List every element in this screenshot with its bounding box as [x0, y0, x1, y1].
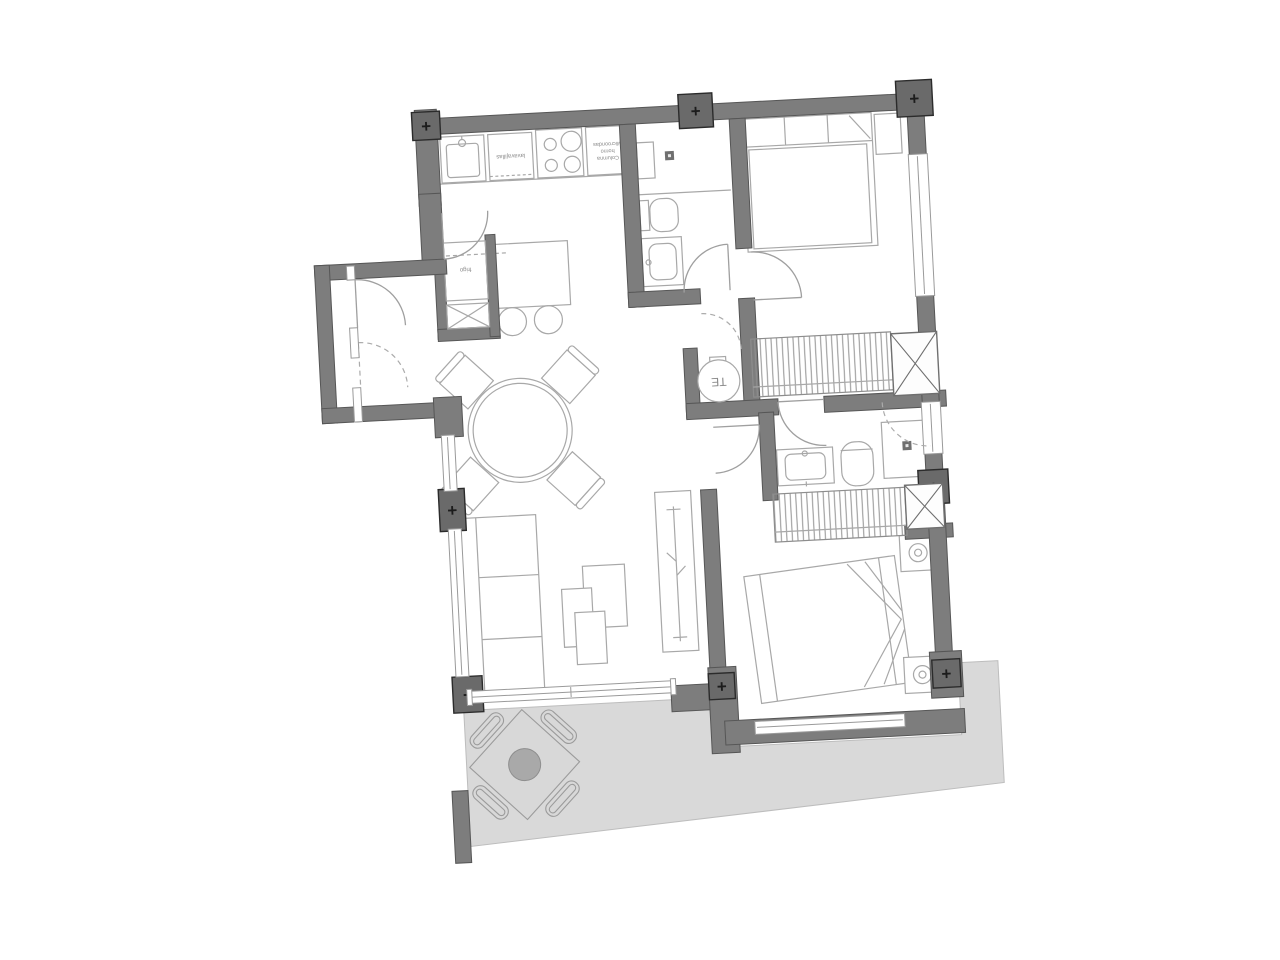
shower-shelf [636, 142, 655, 179]
living-room [433, 339, 701, 703]
sink-vanity [777, 447, 835, 488]
nightstand [874, 113, 902, 154]
entry-south-wall [322, 403, 441, 424]
door-bathroom2 [778, 399, 826, 447]
svg-text:+: + [447, 501, 458, 520]
kitchen-west-wall [419, 193, 445, 266]
shower-drain-icon [665, 151, 674, 160]
water-heater: TE [697, 356, 741, 403]
window [908, 154, 934, 297]
shaft-x-icon [891, 331, 940, 395]
column-marker-icon: + [895, 79, 933, 117]
terrace-wall-stub [452, 791, 472, 864]
entry-north-wall [314, 259, 447, 281]
dishwasher-label: lavavajillas [496, 152, 525, 160]
bath1-south-wall [628, 289, 701, 308]
water-heater-label: TE [711, 374, 727, 389]
plan-rotated-group: lavavajillas Microondas horno Columna [306, 77, 1007, 869]
door-kitchen [442, 211, 490, 259]
svg-text:+: + [941, 664, 952, 683]
double-bed [744, 556, 912, 704]
bar-stool [498, 307, 527, 336]
column-marker-icon: + [708, 672, 735, 699]
toilet-icon [840, 441, 874, 487]
wardrobe [773, 487, 907, 542]
tall-unit-label-1: Microondas [593, 140, 622, 147]
kitchen-island [487, 241, 572, 337]
svg-text:+: + [690, 101, 701, 120]
fridge-label: frigo [459, 266, 472, 273]
kitchen-sink [440, 135, 486, 183]
sink-vanity [641, 237, 683, 287]
shower-screen [637, 190, 731, 195]
door-entry-closet [358, 340, 407, 389]
svg-text:+: + [909, 89, 920, 108]
entry-partition [346, 266, 362, 422]
door-bathroom1 [682, 244, 730, 292]
stove-icon [535, 128, 583, 178]
shaft-x-icon [905, 483, 945, 529]
bedroom-1 [741, 111, 907, 252]
double-bed [741, 113, 878, 253]
floor-plan-page: lavavajillas Microondas horno Columna [0, 0, 1280, 960]
dishwasher: lavavajillas [488, 132, 534, 180]
coffee-tables [560, 564, 629, 665]
bath1-west-wall [619, 124, 645, 308]
door-heater-niche [701, 312, 741, 352]
terrace-dining-set [466, 706, 584, 824]
kitchen-counter-edge [440, 174, 632, 184]
door-entry [355, 277, 405, 327]
tall-unit-label-2: horno [600, 147, 614, 154]
bathroom-1 [634, 138, 735, 287]
door-bedroom1 [751, 249, 801, 299]
column-marker-icon: + [438, 488, 466, 531]
column-marker-icon: + [678, 93, 714, 129]
column-marker-icon: + [411, 111, 440, 140]
living-east-wall [701, 489, 727, 686]
sofa [458, 515, 546, 703]
kitchen: lavavajillas Microondas horno Columna [438, 125, 640, 339]
window [441, 435, 457, 492]
bath2-west-wall [759, 412, 779, 501]
tv-sideboard [655, 491, 699, 653]
bar-stool [534, 305, 563, 334]
tall-unit-label-3: Columna [596, 154, 619, 161]
column-marker-icon: + [932, 659, 961, 688]
entry-corner-block [433, 396, 463, 437]
wardrobe [751, 332, 894, 397]
svg-text:+: + [716, 677, 727, 696]
bathroom-2 [775, 420, 932, 490]
door-bedroom2 [713, 425, 761, 473]
entry-west-wall [314, 265, 337, 424]
svg-text:+: + [421, 117, 432, 136]
bedroom-2 [742, 534, 943, 704]
upper-cabinet-dashed [446, 253, 508, 256]
floor-plan: lavavajillas Microondas horno Columna [0, 0, 1280, 960]
toilet-icon [639, 198, 679, 233]
cabinet-x-icon [446, 303, 489, 329]
